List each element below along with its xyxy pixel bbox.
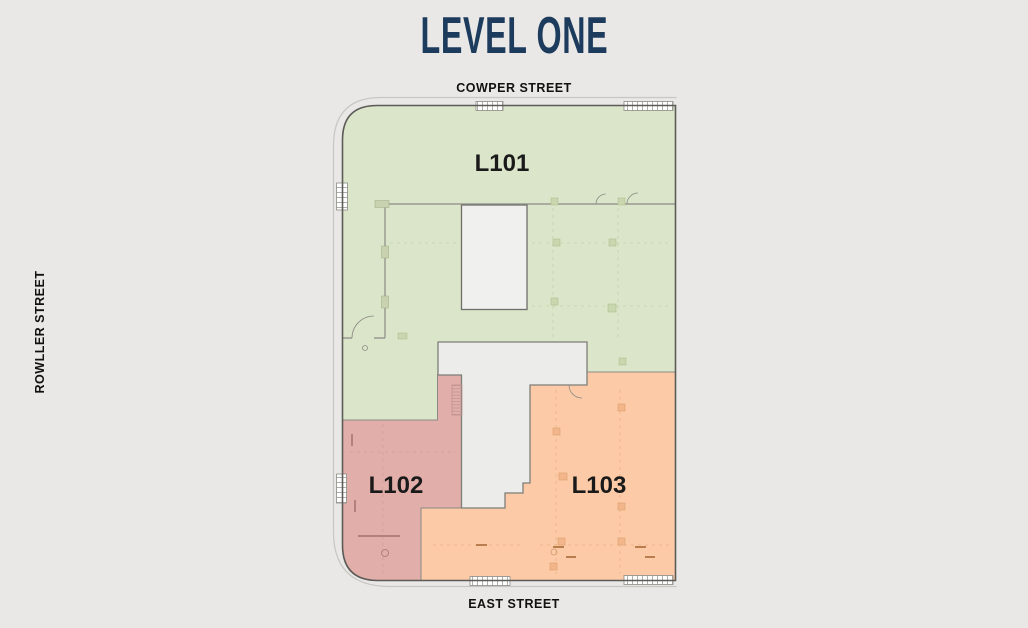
interior-room-cutout xyxy=(462,205,528,310)
unit-L102-label: L102 xyxy=(369,472,424,499)
floor-plan: L101 L102 L103 xyxy=(0,0,1028,628)
unit-L101-label: L101 xyxy=(475,150,530,177)
unit-L103-label: L103 xyxy=(572,472,627,499)
stair-block xyxy=(452,385,462,415)
page: LEVEL ONE COWPER STREET ROWLLER STREET E… xyxy=(0,0,1028,628)
